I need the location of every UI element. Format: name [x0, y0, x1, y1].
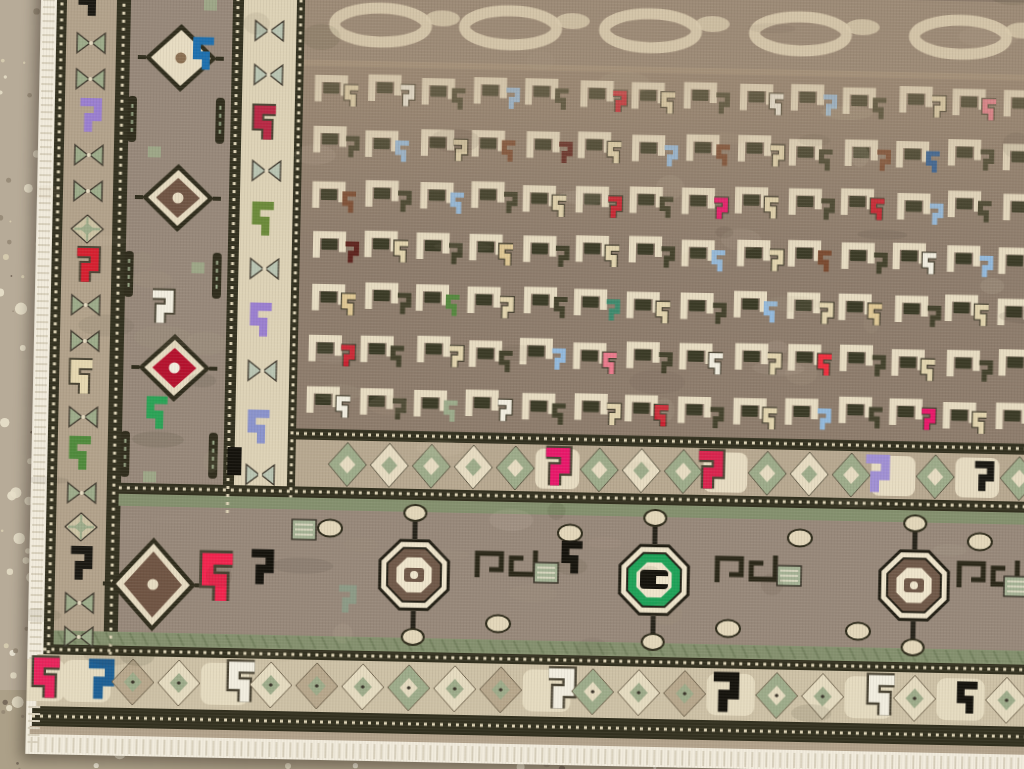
ball-motif: [846, 622, 870, 639]
sage-block-motif: [292, 519, 316, 539]
ball-motif: [788, 529, 812, 546]
bar-motif: [212, 253, 222, 299]
field-abrash: [300, 60, 1024, 269]
ball-motif: [558, 524, 582, 541]
ball-motif: [716, 620, 740, 637]
sage-bit: [148, 146, 161, 157]
sage-bit: [204, 0, 217, 11]
ball-motif: [968, 533, 992, 550]
area-rug: [25, 0, 1024, 769]
bar-motif: [120, 431, 130, 477]
sage-block-motif: [1004, 576, 1024, 596]
sage-bit: [191, 262, 204, 273]
ball-motif: [486, 615, 510, 632]
bar-motif: [215, 98, 225, 144]
bar-motif: [127, 96, 137, 142]
rug-weave: [25, 0, 1024, 769]
sage-block-motif: [534, 562, 558, 582]
sage-bit: [143, 471, 156, 482]
ball-motif: [318, 519, 342, 536]
photo-scene: [0, 0, 1024, 769]
bar-motif: [124, 251, 134, 297]
